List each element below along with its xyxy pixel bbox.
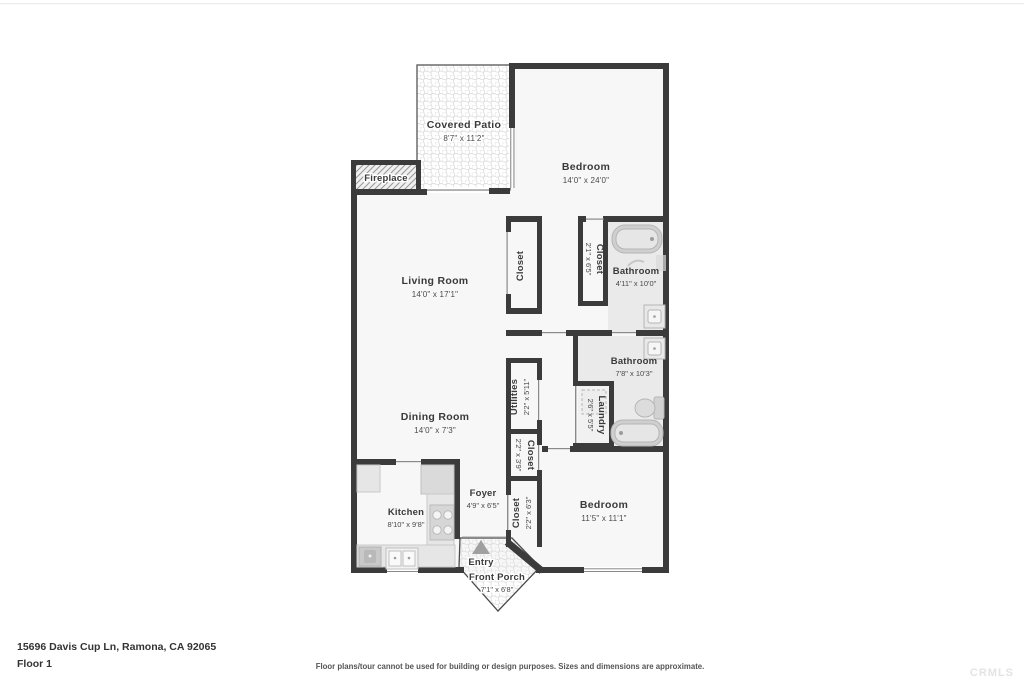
utilities-label: Utilities	[509, 379, 520, 415]
foyer-dims: 4'9" x 6'5"	[467, 501, 500, 510]
fireplace-label: Fireplace	[364, 173, 408, 184]
disclaimer-text: Floor plans/tour cannot be used for buil…	[316, 662, 705, 671]
watermark-logo: CRMLS	[970, 667, 1014, 679]
laundry-label: Laundry	[596, 396, 607, 435]
bathroom1-label: Bathroom	[613, 266, 659, 277]
floor-label: Floor 1	[17, 658, 52, 670]
foyer-label: Foyer	[470, 488, 497, 499]
bedroom1-patio-window	[510, 128, 511, 188]
floor-plan-page: Covered Patio 8'7" x 11'2" Bedroom 14'0"…	[0, 0, 1024, 683]
foyer-closet-dims: 2'2" x 6'3"	[524, 496, 533, 529]
living-closet-label: Closet	[515, 250, 526, 281]
bedroom2-window	[584, 568, 642, 569]
bathroom2-dims: 7'8" x 10'3"	[616, 369, 653, 378]
counter	[357, 465, 380, 492]
bathroom2-label: Bathroom	[611, 356, 657, 367]
patio-slider-door	[427, 189, 489, 190]
fridge-icon	[421, 465, 454, 494]
stove-icon	[430, 505, 454, 540]
bedroom2-dims: 11'5" x 11'1"	[581, 514, 626, 523]
floor-plan-canvas: Covered Patio 8'7" x 11'2" Bedroom 14'0"…	[0, 0, 1024, 683]
laundry-dims: 2'6" x 5'5"	[586, 399, 595, 432]
foyer-closet-label: Closet	[511, 497, 522, 528]
bedroom1-dims: 14'0" x 24'0"	[563, 176, 609, 185]
dining-room-dims: 14'0" x 7'3"	[414, 426, 456, 435]
dining-room-label: Dining Room	[401, 411, 470, 423]
kitchen-label: Kitchen	[388, 507, 424, 518]
bedroom1-label: Bedroom	[562, 161, 610, 173]
top-divider	[0, 3, 1024, 4]
address-text: 15696 Davis Cup Ln, Ramona, CA 92065	[17, 641, 216, 653]
covered-patio-dims: 8'7" x 11'2"	[443, 134, 484, 143]
bedroom1-closet-label: Closet	[594, 244, 605, 275]
hall-closet-dims: 2'2" x 3'9"	[514, 439, 523, 472]
bedroom2-label: Bedroom	[580, 499, 628, 511]
kitchen-dims: 8'10" x 9'8"	[388, 520, 425, 529]
living-room-dims: 14'0" x 17'1"	[412, 290, 458, 299]
front-porch-label: Front Porch	[469, 572, 525, 583]
bathroom1-dims: 4'11" x 10'0"	[616, 279, 657, 288]
covered-patio-label: Covered Patio	[427, 119, 502, 131]
front-porch-dims: 7'1" x 6'8"	[481, 585, 514, 594]
living-room-label: Living Room	[402, 275, 469, 287]
hall-closet-label: Closet	[525, 440, 536, 471]
utilities-dims: 2'2" x 5'11"	[522, 378, 531, 415]
entry-label: Entry	[468, 557, 494, 568]
bedroom1-closet-dims: 2'1" x 6'5"	[584, 243, 593, 276]
